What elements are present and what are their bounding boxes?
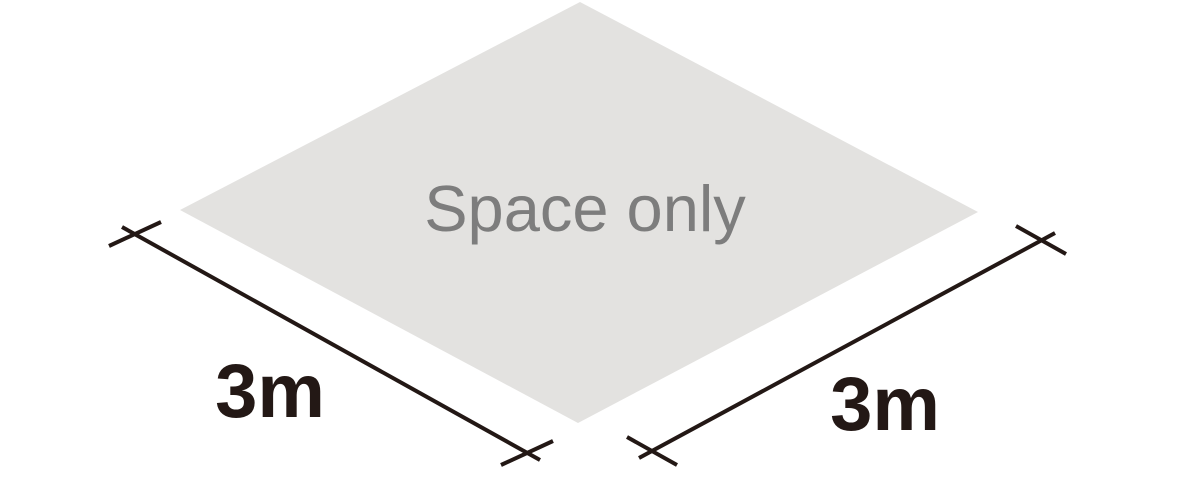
diagram-canvas: Space only 3m 3m (0, 0, 1201, 479)
left-dimension-label: 3m (215, 349, 325, 434)
right-dimension-label: 3m (830, 362, 940, 447)
space-only-label: Space only (424, 172, 746, 245)
isometric-space-diagram: Space only 3m 3m (0, 0, 1201, 479)
